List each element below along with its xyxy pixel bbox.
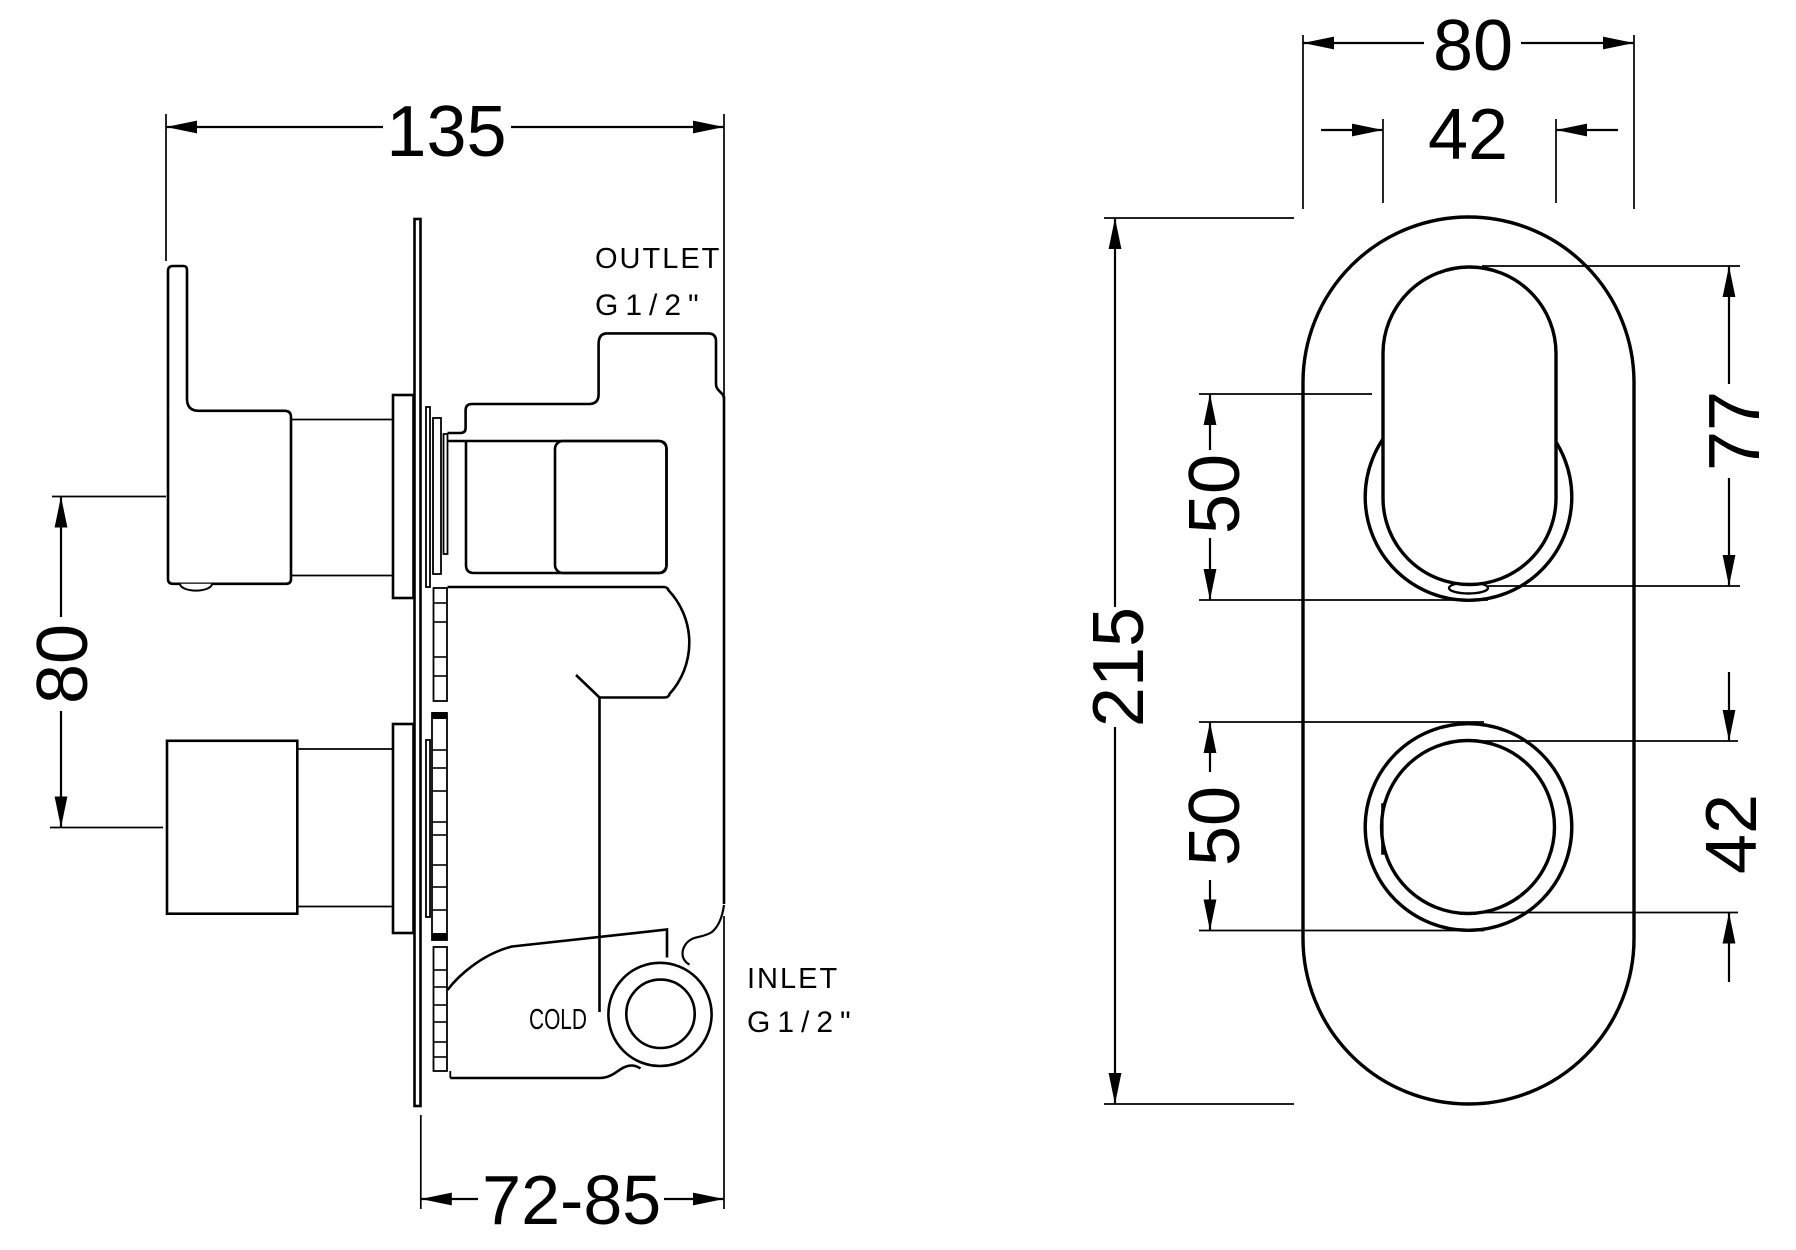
svg-text:135: 135 [386,92,506,172]
svg-text:COLD: COLD [529,1004,587,1036]
svg-text:215: 215 [1079,607,1159,727]
svg-text:G1/2": G1/2" [595,289,706,322]
svg-text:42: 42 [1428,95,1508,175]
svg-text:80: 80 [1433,6,1513,86]
svg-text:72-85: 72-85 [482,1161,661,1239]
svg-text:50: 50 [1175,786,1255,866]
svg-text:77: 77 [1695,391,1775,471]
svg-text:OUTLET: OUTLET [595,243,721,275]
svg-text:INLET: INLET [747,963,839,995]
svg-text:42: 42 [1692,794,1772,874]
svg-text:80: 80 [23,624,103,704]
svg-text:G1/2": G1/2" [747,1006,858,1039]
svg-text:50: 50 [1175,454,1255,534]
